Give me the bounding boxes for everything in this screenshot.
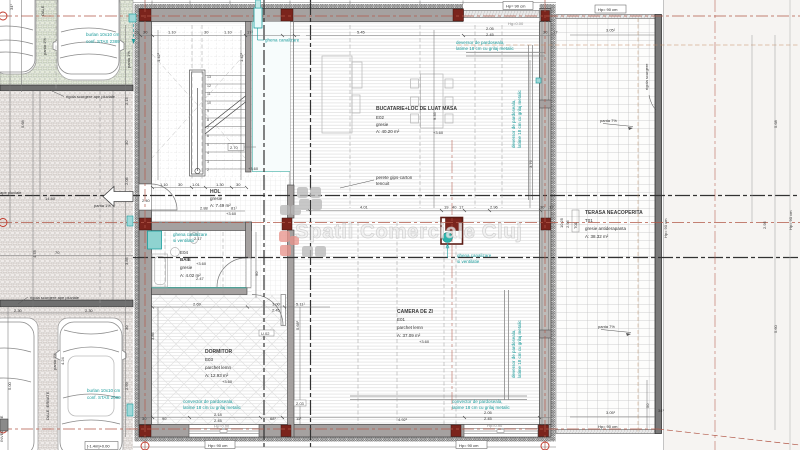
- svg-text:3: 3: [207, 160, 209, 164]
- svg-text:rigola scurgere ape pluviale: rigola scurgere ape pluviale: [66, 94, 116, 99]
- svg-text:T01: T01: [585, 218, 593, 223]
- svg-text:panta 7%: panta 7%: [598, 324, 615, 329]
- svg-text:gresie: gresie: [210, 196, 223, 201]
- svg-text:2: 2: [207, 168, 209, 172]
- svg-text:5.11¹: 5.11¹: [296, 302, 305, 307]
- svg-text:12: 12: [207, 84, 211, 88]
- svg-text:gresie: gresie: [376, 122, 389, 127]
- svg-text:parchet lemn: parchet lemn: [397, 325, 424, 330]
- svg-text:1.30: 1.30: [216, 182, 225, 187]
- svg-text:11: 11: [207, 92, 211, 96]
- svg-text:1.01: 1.01: [192, 182, 201, 187]
- svg-text:2.30: 2.30: [85, 308, 94, 313]
- svg-text:rigola scurgere: rigola scurgere: [644, 63, 649, 90]
- svg-text:9: 9: [207, 109, 209, 113]
- svg-text:30: 30: [124, 325, 129, 330]
- svg-text:6: 6: [207, 134, 209, 138]
- svg-text:burlan 10x10 cm: burlan 10x10 cm: [86, 32, 120, 37]
- svg-text:30: 30: [543, 30, 548, 35]
- svg-text:convector de pardoseala,: convector de pardoseala,: [452, 399, 503, 404]
- svg-text:gresie antiderapanta: gresie antiderapanta: [585, 226, 627, 231]
- svg-text:3.76: 3.76: [528, 159, 533, 168]
- svg-text:50: 50: [645, 403, 650, 408]
- svg-text:2.45: 2.45: [486, 32, 495, 37]
- svg-text:5.68¹: 5.68¹: [295, 320, 300, 330]
- svg-text:deversor de pardoseala,: deversor de pardoseala,: [511, 99, 516, 148]
- svg-text:11¹: 11¹: [296, 416, 302, 421]
- svg-text:30: 30: [143, 30, 148, 35]
- svg-text:4.01: 4.01: [360, 205, 369, 210]
- svg-text:2.96: 2.96: [490, 205, 499, 210]
- svg-text:conf. STAS 2389: conf. STAS 2389: [86, 39, 120, 44]
- svg-text:2.45: 2.45: [272, 308, 281, 313]
- svg-text:2.05: 2.05: [486, 26, 495, 31]
- svg-text:Hp= 90 cm: Hp= 90 cm: [663, 218, 668, 238]
- svg-text:1.10: 1.10: [160, 182, 169, 187]
- svg-text:Hp= 90 cm: Hp= 90 cm: [506, 4, 526, 9]
- svg-text:68¹: 68¹: [270, 416, 276, 421]
- svg-text:Hp=0.00: Hp=0.00: [214, 424, 230, 429]
- svg-text:5.68: 5.68: [773, 119, 778, 128]
- svg-text:Hp= 90 cm: Hp= 90 cm: [788, 210, 793, 230]
- svg-text:2.30: 2.30: [14, 308, 23, 313]
- svg-text:10: 10: [207, 101, 211, 105]
- svg-text:E01: E01: [397, 317, 406, 322]
- svg-text:ghena canalizare: ghena canalizare: [265, 38, 300, 43]
- svg-text:3.85: 3.85: [124, 256, 129, 265]
- svg-text:2.18: 2.18: [214, 412, 223, 417]
- svg-text:panta 1%: panta 1%: [52, 353, 57, 370]
- svg-text:si ventilatii: si ventilatii: [173, 238, 194, 243]
- svg-text:1.10: 1.10: [224, 30, 233, 35]
- svg-text:DALE: DALE: [40, 5, 45, 16]
- svg-text:90: 90: [254, 271, 259, 276]
- svg-text:3.85: 3.85: [150, 331, 155, 340]
- svg-text:8: 8: [207, 118, 209, 122]
- svg-text:Hg=0.00: Hg=0.00: [508, 21, 524, 26]
- svg-text:2.88: 2.88: [200, 206, 209, 211]
- svg-text:30: 30: [124, 140, 129, 145]
- svg-text:34¹: 34¹: [9, 4, 14, 10]
- svg-text:ghena canalizare: ghena canalizare: [457, 253, 492, 258]
- svg-text:latime 18 cm cu grilaj metalic: latime 18 cm cu grilaj metalic: [517, 89, 522, 148]
- svg-text:2.45: 2.45: [214, 418, 223, 423]
- svg-text:conf. STAS 2089: conf. STAS 2089: [87, 395, 121, 400]
- svg-text:A: 37.09 m²: A: 37.09 m²: [397, 333, 421, 338]
- svg-text:4.78: 4.78: [32, 249, 37, 258]
- svg-text:A: 7.49 m²: A: 7.49 m²: [210, 203, 231, 208]
- svg-text:19: 19: [444, 205, 449, 210]
- svg-text:Hp= 90 cm: Hp= 90 cm: [208, 443, 228, 448]
- svg-text:10.25: 10.25: [559, 217, 564, 228]
- svg-text:4.24: 4.24: [60, 356, 65, 365]
- svg-text:40: 40: [452, 205, 457, 210]
- svg-text:2.05: 2.05: [484, 410, 493, 415]
- svg-text:81¹: 81¹: [231, 206, 237, 211]
- svg-text:14.80: 14.80: [45, 196, 56, 201]
- svg-text:70: 70: [55, 250, 60, 255]
- svg-text:4.92¹: 4.92¹: [398, 417, 408, 422]
- svg-text:deversor de pardoseala,: deversor de pardoseala,: [511, 329, 516, 378]
- svg-text:burlan 10x10 cm: burlan 10x10 cm: [87, 388, 121, 393]
- svg-text:90: 90: [162, 416, 167, 421]
- svg-text:latime 18 cm cu grilaj metalic: latime 18 cm cu grilaj metalic: [452, 405, 511, 410]
- svg-text:latime 18 cm cu grilaj metalic: latime 18 cm cu grilaj metalic: [456, 46, 515, 51]
- svg-text:+3.60: +3.60: [433, 130, 444, 135]
- svg-text:DALE IERBATE: DALE IERBATE: [45, 391, 50, 420]
- svg-text:2.45: 2.45: [484, 416, 493, 421]
- svg-text:2.15: 2.15: [124, 96, 129, 105]
- svg-text:tencuit: tencuit: [376, 181, 390, 186]
- svg-text:HOL: HOL: [210, 189, 221, 195]
- svg-text:latime 18 cm cu grilaj metalic: latime 18 cm cu grilaj metalic: [517, 319, 522, 378]
- svg-text:E02: E02: [376, 115, 385, 120]
- svg-text:+3.60: +3.60: [419, 339, 430, 344]
- svg-text:2.05: 2.05: [124, 176, 129, 185]
- svg-text:5: 5: [207, 143, 209, 147]
- svg-text:U.02: U.02: [261, 331, 270, 336]
- svg-text:+3.60: +3.60: [196, 261, 207, 266]
- svg-text:latime 18 cm cu grilaj metalic: latime 18 cm cu grilaj metalic: [183, 405, 242, 410]
- svg-text:2.95: 2.95: [762, 220, 767, 229]
- svg-text:2.69: 2.69: [124, 381, 129, 390]
- svg-text:E04: E04: [180, 250, 189, 255]
- svg-text:13: 13: [207, 75, 211, 79]
- svg-text:3.05¹: 3.05¹: [606, 28, 616, 33]
- svg-text:Hp= 90 cm: Hp= 90 cm: [598, 7, 618, 12]
- svg-text:.17: .17: [552, 30, 558, 35]
- svg-text:2.40: 2.40: [142, 198, 151, 203]
- svg-text:30: 30: [178, 182, 183, 187]
- svg-text:1.42¹: 1.42¹: [239, 52, 244, 62]
- svg-text:5.60: 5.60: [773, 324, 778, 333]
- svg-text:30: 30: [236, 182, 241, 187]
- svg-text:.17: .17: [548, 205, 554, 210]
- svg-text:ape pluviale: ape pluviale: [0, 190, 22, 195]
- svg-text:17¹: 17¹: [247, 30, 253, 35]
- svg-text:5.68: 5.68: [20, 119, 25, 128]
- svg-text:1.00: 1.00: [272, 302, 281, 307]
- svg-text:7: 7: [207, 126, 209, 130]
- svg-text:DORMITOR: DORMITOR: [205, 349, 233, 355]
- svg-text:2.47: 2.47: [196, 276, 205, 281]
- svg-text:5.00: 5.00: [7, 381, 12, 390]
- svg-text:+3.60: +3.60: [226, 211, 237, 216]
- svg-text:30: 30: [540, 205, 545, 210]
- svg-text:A: 40.20 m²: A: 40.20 m²: [376, 129, 400, 134]
- svg-text:BUCATARIE+LOC DE LUAT MASA: BUCATARIE+LOC DE LUAT MASA: [376, 106, 457, 112]
- svg-text:30: 30: [142, 416, 147, 421]
- svg-text:Spatii Comerciale Cluj: Spatii Comerciale Cluj: [295, 220, 522, 243]
- svg-text:Hp= 90 cm: Hp= 90 cm: [598, 424, 618, 429]
- svg-text:2.03: 2.03: [296, 401, 305, 406]
- svg-text:[-1.4m]+0.00: [-1.4m]+0.00: [87, 444, 110, 449]
- svg-text:panta 1%: panta 1%: [94, 203, 111, 208]
- svg-text:panta 7%: panta 7%: [600, 118, 617, 123]
- svg-text:A: 12.93 m²: A: 12.93 m²: [205, 373, 229, 378]
- svg-text:TERASA NEACOPERITA: TERASA NEACOPERITA: [585, 210, 643, 216]
- svg-text:rigola scurgere ape pluviale: rigola scurgere ape pluviale: [30, 295, 80, 300]
- svg-text:3.05¹: 3.05¹: [606, 410, 616, 415]
- svg-text:E03: E03: [205, 357, 214, 362]
- svg-text:perete gips-carton: perete gips-carton: [376, 175, 413, 180]
- svg-text:Hp= 90 cm: Hp= 90 cm: [459, 443, 479, 448]
- svg-text:gresie: gresie: [180, 265, 193, 270]
- svg-text:T01: T01: [573, 221, 578, 229]
- svg-text:+3.60: +3.60: [222, 379, 233, 384]
- svg-text:parchet lemn: parchet lemn: [205, 365, 232, 370]
- svg-text:1.10: 1.10: [168, 30, 177, 35]
- svg-text:5.45: 5.45: [357, 30, 366, 35]
- svg-text:2.69: 2.69: [193, 302, 202, 307]
- svg-text:si ventilatie: si ventilatie: [457, 259, 480, 264]
- svg-text:BAIE: BAIE: [180, 257, 191, 262]
- svg-text:deversor de pardoseala,: deversor de pardoseala,: [456, 40, 505, 45]
- svg-text:34¹: 34¹: [658, 408, 664, 413]
- svg-text:Hp=0.90: Hp=0.90: [487, 423, 503, 428]
- svg-text:ghena canalizare: ghena canalizare: [173, 232, 208, 237]
- svg-text:A: 38.32 m²: A: 38.32 m²: [585, 234, 609, 239]
- svg-text:4: 4: [207, 151, 209, 155]
- svg-text:panta 1%: panta 1%: [126, 51, 131, 68]
- svg-text:30: 30: [204, 30, 209, 35]
- svg-text:convector de pardoseala,: convector de pardoseala,: [183, 399, 234, 404]
- svg-text:panta 1%: panta 1%: [42, 38, 47, 55]
- svg-text:CAMERA DE ZI: CAMERA DE ZI: [397, 309, 434, 315]
- svg-text:2.95: 2.95: [565, 219, 570, 228]
- svg-text:+3.60: +3.60: [248, 166, 259, 171]
- svg-text:1.42¹: 1.42¹: [156, 52, 161, 62]
- svg-text:25: 25: [134, 30, 139, 35]
- svg-text:17: 17: [459, 205, 464, 210]
- svg-text:9.35: 9.35: [432, 111, 437, 120]
